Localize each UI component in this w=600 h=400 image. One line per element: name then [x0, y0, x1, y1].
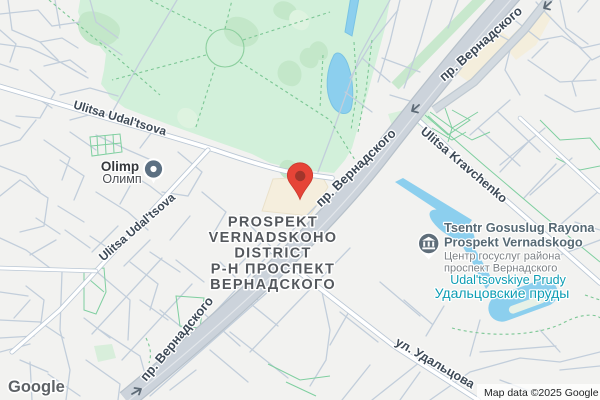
- svg-text:Map data ©2025 Google: Map data ©2025 Google: [484, 387, 599, 399]
- svg-text:DISTRICT: DISTRICT: [234, 246, 311, 262]
- svg-text:Google: Google: [8, 378, 65, 396]
- svg-text:ВЕРНАДСКОГО: ВЕРНАДСКОГО: [210, 277, 336, 293]
- svg-text:Р-Н ПРОСПЕКТ: Р-Н ПРОСПЕКТ: [211, 262, 335, 278]
- svg-text:Prospekt Vernadskogo: Prospekt Vernadskogo: [444, 235, 583, 250]
- svg-text:VERNADSKOHO: VERNADSKOHO: [209, 230, 338, 246]
- svg-text:Центр госуслуг района: Центр госуслуг района: [444, 251, 561, 263]
- svg-text:PROSPEKT: PROSPEKT: [228, 215, 318, 231]
- svg-text:Удальцовские пруды: Удальцовские пруды: [435, 285, 570, 301]
- svg-text:Tsentr Gosuslug Rayona: Tsentr Gosuslug Rayona: [444, 220, 595, 235]
- svg-text:Олимп: Олимп: [102, 172, 141, 186]
